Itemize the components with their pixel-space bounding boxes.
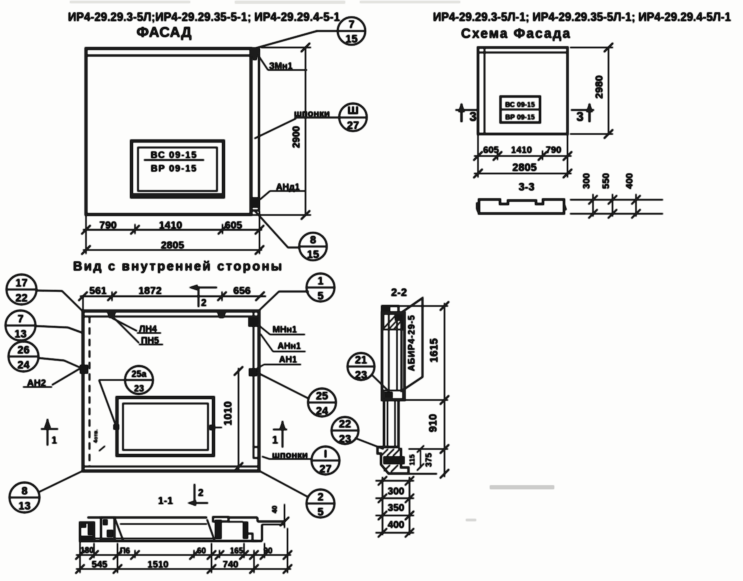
svg-text:13: 13 [14,329,26,341]
svg-text:8: 8 [310,235,316,247]
svg-text:2980: 2980 [594,75,606,99]
svg-text:24: 24 [17,360,30,372]
svg-text:1410: 1410 [159,220,183,232]
svg-text:2-2: 2-2 [391,287,407,299]
svg-text:22: 22 [15,293,27,305]
svg-text:5: 5 [317,291,323,303]
svg-text:15: 15 [307,249,319,261]
svg-text:2805: 2805 [512,162,536,174]
svg-text:ИР4-29.29.3-5Л;ИР4-29.29.35-5-: ИР4-29.29.3-5Л;ИР4-29.29.35-5-1; ИР4-29.… [68,12,341,24]
svg-text:550: 550 [601,173,612,189]
svg-text:ВР 09-15: ВР 09-15 [151,164,198,175]
svg-text:90: 90 [264,547,273,556]
svg-text:22: 22 [339,419,351,431]
svg-text:25: 25 [316,391,328,403]
svg-text:15: 15 [345,34,357,46]
svg-text:910: 910 [428,414,440,432]
svg-text:300: 300 [582,173,593,189]
svg-text:790: 790 [99,220,117,232]
svg-text:1615: 1615 [429,338,441,362]
svg-text:1410: 1410 [511,145,532,156]
svg-text:АНн1: АНн1 [278,341,301,351]
svg-text:21: 21 [355,355,367,367]
svg-text:1872: 1872 [138,285,162,297]
svg-text:ВС 09-15: ВС 09-15 [505,102,535,109]
svg-text:300: 300 [388,487,405,498]
svg-text:24: 24 [316,406,329,418]
svg-text:МНн1: МНн1 [273,325,297,335]
svg-text:350: 350 [388,503,405,514]
svg-text:2805: 2805 [161,240,185,252]
svg-text:25а: 25а [131,369,147,379]
svg-text:4отв.: 4отв. [94,429,100,443]
svg-text:27: 27 [319,464,331,476]
svg-text:60: 60 [197,547,206,556]
svg-text:1: 1 [52,436,58,447]
svg-text:2: 2 [317,492,323,504]
svg-text:1-1: 1-1 [158,495,173,507]
svg-text:13: 13 [18,501,30,513]
svg-text:ИР4-29.29.3-5Л-1; ИР4-29.29.35: ИР4-29.29.3-5Л-1; ИР4-29.29.35-5Л-1; ИР4… [433,12,732,24]
svg-text:740: 740 [223,560,239,571]
svg-text:26: 26 [17,345,29,357]
svg-text:400: 400 [388,520,405,531]
svg-text:1010: 1010 [223,401,235,425]
svg-text:27: 27 [347,120,359,132]
svg-text:8: 8 [21,486,27,498]
svg-text:165: 165 [230,547,244,556]
svg-text:7: 7 [17,314,23,326]
svg-text:3-3: 3-3 [519,182,535,194]
svg-text:23: 23 [355,370,367,382]
svg-text:1: 1 [272,435,278,447]
svg-text:40: 40 [272,506,279,514]
svg-text:790: 790 [546,145,562,156]
svg-text:ФАСАД: ФАСАД [137,25,195,41]
svg-text:П6: П6 [120,547,131,556]
svg-text:656: 656 [233,285,251,297]
svg-text:605: 605 [225,220,243,232]
svg-text:561: 561 [89,285,107,297]
svg-text:3: 3 [469,109,476,124]
svg-text:180: 180 [80,546,94,555]
svg-text:2: 2 [201,298,207,309]
svg-text:АБИР4-29-5: АБИР4-29-5 [407,315,417,371]
svg-text:375: 375 [424,453,434,467]
svg-text:3: 3 [576,109,583,124]
svg-text:23: 23 [134,384,144,394]
svg-text:1510: 1510 [147,560,168,571]
svg-text:7: 7 [348,19,354,31]
svg-text:2900: 2900 [292,125,303,148]
svg-text:ВР 09-15: ВР 09-15 [505,115,535,122]
svg-text:400: 400 [625,173,636,189]
svg-text:I: I [324,449,327,461]
svg-text:Схема Фасада: Схема Фасада [461,26,570,41]
svg-text:17: 17 [15,278,27,290]
svg-text:23: 23 [339,434,351,446]
svg-text:Ш: Ш [347,105,358,117]
svg-text:5: 5 [317,507,323,519]
svg-text:115: 115 [410,454,417,465]
svg-text:Вид с внутренней стороны: Вид с внутренней стороны [73,259,282,274]
svg-text:АН1: АН1 [279,355,297,365]
svg-text:1: 1 [317,276,323,288]
svg-text:2: 2 [198,488,204,499]
svg-text:605: 605 [483,145,500,156]
svg-text:545: 545 [92,560,109,571]
